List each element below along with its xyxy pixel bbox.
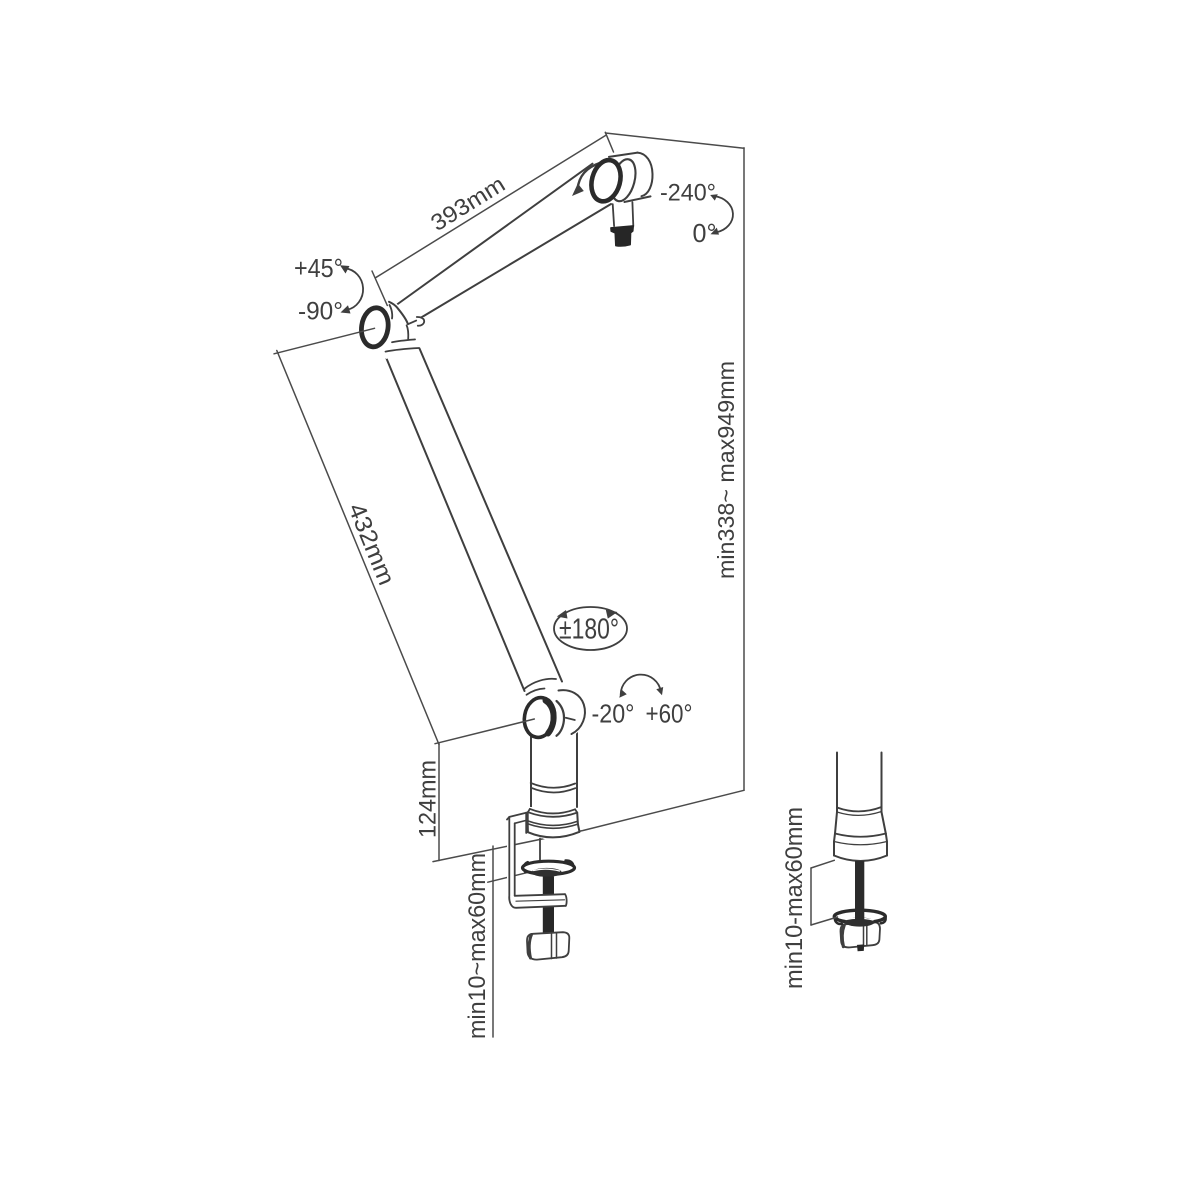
svg-text:-20°: -20°: [592, 699, 635, 729]
svg-text:+45°: +45°: [294, 253, 343, 283]
svg-text:min338~ max949mm: min338~ max949mm: [713, 361, 739, 579]
svg-text:-90°: -90°: [298, 298, 343, 326]
svg-text:min10~max60mm: min10~max60mm: [464, 853, 491, 1039]
svg-text:min10-max60mm: min10-max60mm: [781, 807, 808, 989]
svg-text:124mm: 124mm: [415, 760, 442, 838]
svg-text:+60°: +60°: [646, 699, 693, 729]
svg-text:-240°: -240°: [660, 180, 716, 207]
svg-text:±180°: ±180°: [559, 614, 619, 646]
